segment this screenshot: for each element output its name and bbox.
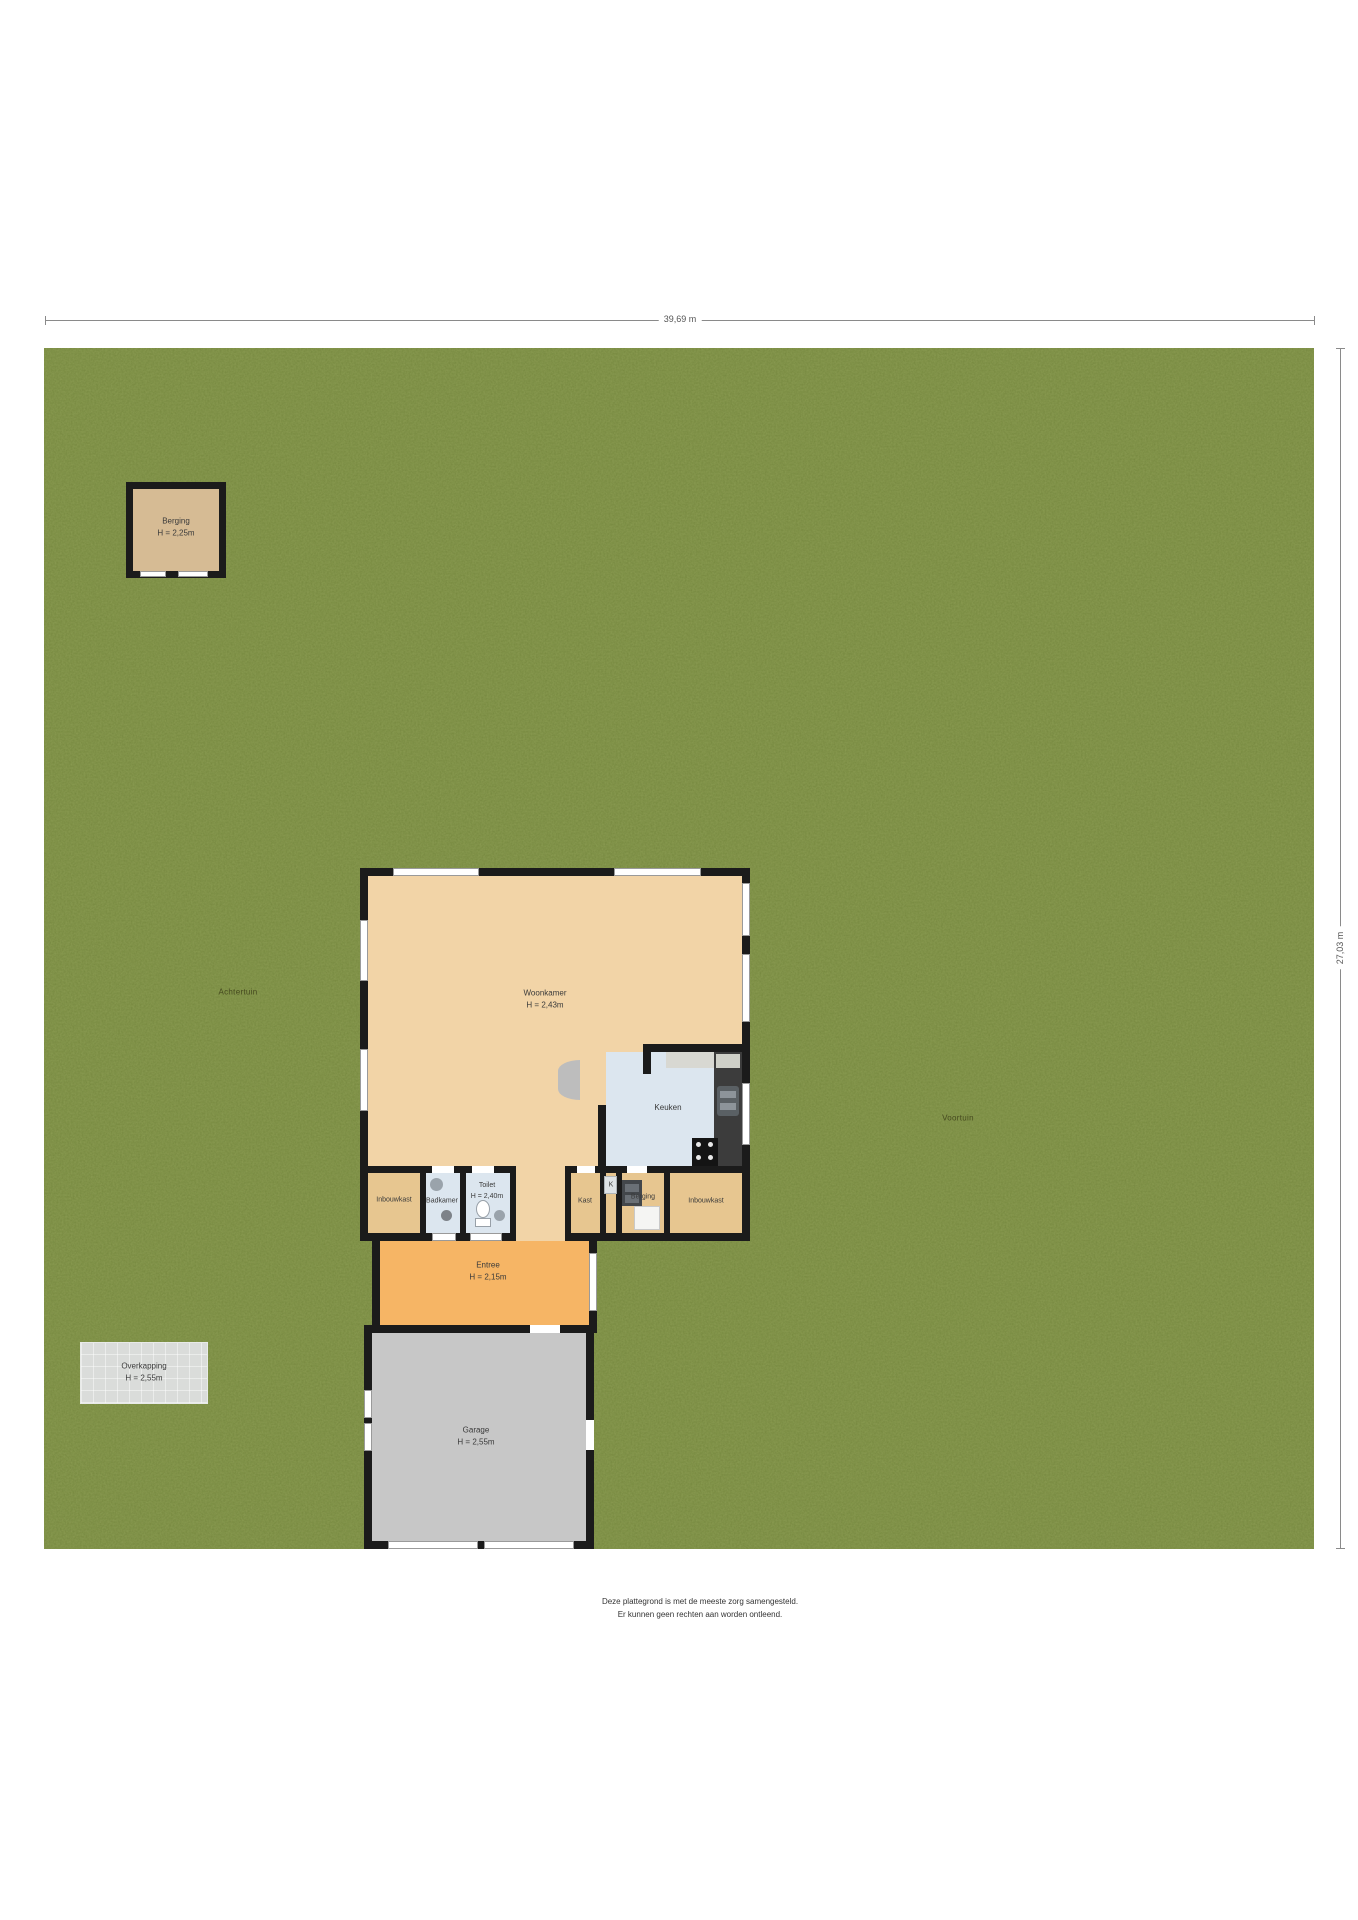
dimension-right-label: 27,03 m	[1335, 927, 1345, 970]
meterkast-label: K	[609, 1181, 614, 1192]
window	[360, 1049, 368, 1111]
toilet-height: H = 2,40m	[471, 1192, 504, 1203]
shed-height: H = 2,25m	[157, 528, 194, 540]
toilet-name: Toilet	[471, 1181, 504, 1192]
window	[432, 1233, 456, 1241]
kitchen-sink-icon	[716, 1054, 740, 1068]
door-opening	[577, 1166, 595, 1173]
storage-box-icon	[634, 1206, 660, 1230]
interior-wall	[643, 1044, 651, 1074]
floor-drain-icon	[441, 1210, 452, 1221]
window	[360, 920, 368, 981]
sink-icon	[494, 1210, 505, 1221]
hallway-floor	[516, 1166, 565, 1241]
disclaimer-line1: Deze plattegrond is met de meeste zorg s…	[602, 1596, 798, 1609]
window	[614, 868, 701, 876]
garage-label: Garage H = 2,55m	[457, 1425, 494, 1450]
floorplan-page: 39,69 m 27,03 m Achtertuin Voortuin	[0, 0, 1358, 1920]
window	[742, 954, 750, 1022]
dimension-right-tick-bottom	[1336, 1548, 1345, 1549]
toilet-label: Toilet H = 2,40m	[471, 1181, 504, 1203]
berging-binnen-label: Berging	[631, 1193, 655, 1204]
door-opening	[627, 1166, 647, 1173]
door-opening	[586, 1420, 594, 1450]
interior-wall	[460, 1173, 466, 1233]
door-opening	[530, 1325, 560, 1333]
window	[178, 571, 208, 577]
garage-name: Garage	[457, 1425, 494, 1437]
window	[589, 1253, 597, 1311]
interior-wall	[664, 1173, 670, 1233]
dimension-top-tick-right	[1314, 316, 1315, 325]
door-opening	[472, 1166, 494, 1173]
door-opening	[432, 1166, 454, 1173]
door-arc	[558, 1060, 580, 1100]
window	[364, 1423, 372, 1451]
entree-name: Entree	[469, 1260, 506, 1272]
garage-door-panel	[388, 1541, 478, 1549]
woonkamer-height: H = 2,43m	[524, 1000, 567, 1012]
kitchen-oven-icon	[717, 1086, 739, 1116]
disclaimer-line2: Er kunnen geen rechten aan worden ontlee…	[602, 1609, 798, 1622]
garage-door-panel	[484, 1541, 574, 1549]
canopy-label: Overkapping H = 2,55m	[121, 1361, 166, 1386]
woonkamer-name: Woonkamer	[524, 988, 567, 1000]
dimension-top-label: 39,69 m	[659, 314, 702, 324]
canopy-height: H = 2,55m	[121, 1373, 166, 1385]
window	[364, 1390, 372, 1418]
entree-height: H = 2,15m	[469, 1272, 506, 1284]
inbouwkast-right-label: Inbouwkast	[688, 1197, 723, 1208]
dimension-top-tick-left	[45, 316, 46, 325]
interior-wall	[565, 1173, 571, 1233]
interior-wall	[510, 1173, 516, 1233]
inbouwkast-left-label: Inbouwkast	[376, 1196, 411, 1207]
kitchen-counter-top	[666, 1052, 714, 1068]
woonkamer-label: Woonkamer H = 2,43m	[524, 988, 567, 1013]
shower-head-icon	[430, 1178, 443, 1191]
keuken-label: Keuken	[654, 1102, 681, 1114]
interior-wall	[598, 1105, 606, 1173]
window	[393, 868, 479, 876]
badkamer-label: Badkamer	[426, 1197, 458, 1208]
window	[742, 883, 750, 936]
window	[140, 571, 166, 577]
kast-label: Kast	[578, 1197, 592, 1208]
window	[470, 1233, 502, 1241]
interior-wall	[643, 1044, 742, 1052]
kitchen-stove-icon	[692, 1138, 718, 1166]
toilet-tank-icon	[475, 1218, 491, 1227]
canopy-name: Overkapping	[121, 1361, 166, 1373]
shed-label: Berging H = 2,25m	[157, 516, 194, 541]
dimension-right-tick-top	[1336, 348, 1345, 349]
disclaimer-text: Deze plattegrond is met de meeste zorg s…	[602, 1596, 798, 1622]
back-garden-label: Achtertuin	[218, 988, 257, 997]
front-garden-label: Voortuin	[942, 1114, 974, 1123]
entree-label: Entree H = 2,15m	[469, 1260, 506, 1285]
garage-height: H = 2,55m	[457, 1437, 494, 1449]
shed-name: Berging	[157, 516, 194, 528]
window	[742, 1083, 750, 1145]
